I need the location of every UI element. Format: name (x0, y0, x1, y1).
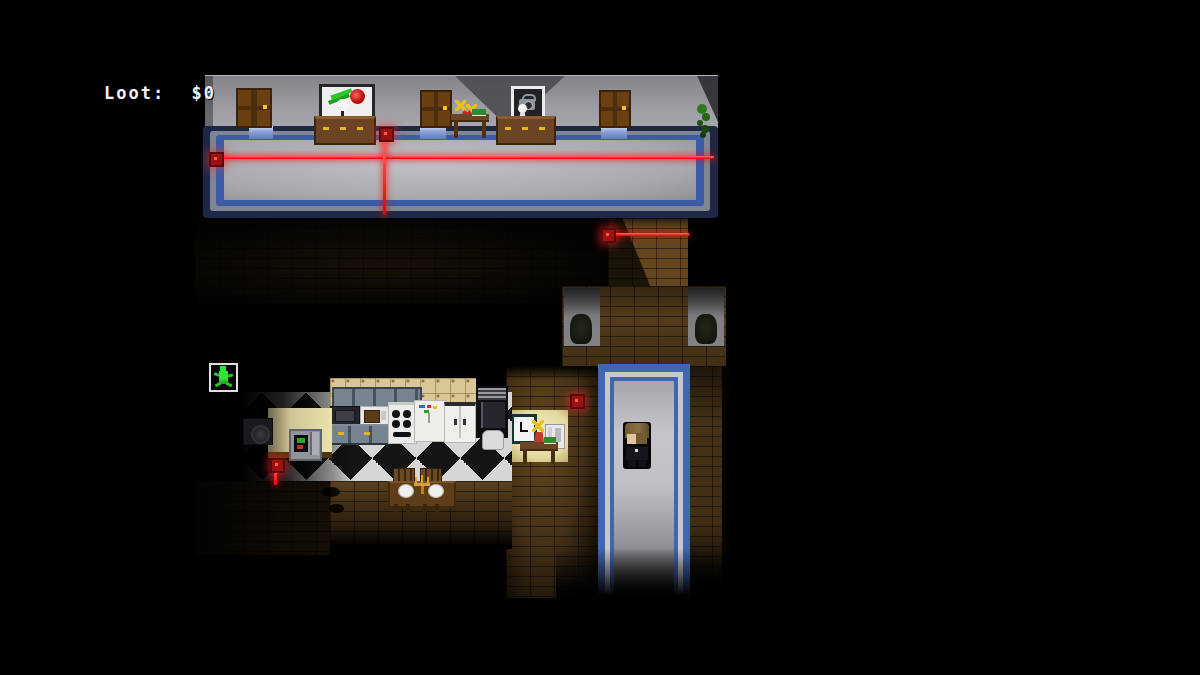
fridge-handle (428, 413, 430, 423)
book (472, 109, 486, 116)
drawer-handle (539, 127, 545, 130)
safe[interactable] (289, 429, 322, 461)
guard-hair-side (636, 433, 647, 444)
door[interactable] (599, 90, 631, 128)
washing-machine[interactable] (243, 418, 273, 445)
guard-shirt (635, 449, 638, 452)
shadow-overlay (608, 218, 688, 228)
hallway (598, 364, 690, 600)
pantry-handle (454, 419, 457, 425)
microwave-door (364, 410, 380, 423)
fridge[interactable] (414, 400, 446, 442)
table-leg (551, 449, 555, 464)
potted-plant (697, 104, 707, 114)
fridge-magnet (427, 405, 431, 408)
door-knob (443, 106, 447, 110)
guard-leg (628, 460, 636, 467)
sink-counter[interactable] (330, 406, 360, 426)
guard-leg (638, 460, 646, 467)
stove-burner (403, 420, 411, 428)
flowers-icon (455, 100, 466, 111)
stove-burner (403, 410, 411, 418)
loot-counter: Loot: $0 (104, 83, 216, 103)
laser-beam-horizontal (221, 156, 714, 159)
drawer-handle (340, 127, 346, 130)
fridge-magnet (433, 406, 437, 409)
drawer-handle (505, 127, 511, 130)
shadow-overlay (506, 366, 600, 598)
plate (428, 484, 444, 498)
coffee-machine (481, 402, 505, 428)
alcove-band (562, 286, 726, 366)
floor-stain (322, 487, 340, 497)
laser-device-light (275, 463, 278, 466)
laser-device-light (214, 157, 217, 160)
dark-brick-wall (195, 218, 610, 304)
floor-stain (329, 504, 344, 513)
floor-carpet (224, 140, 696, 200)
waste-bin[interactable] (482, 430, 504, 450)
table-leg (482, 120, 486, 138)
cabinet-handle (338, 432, 344, 435)
washer-door (251, 425, 270, 444)
door-knob (622, 106, 626, 110)
safe-door-open (310, 432, 319, 455)
loot-label: Loot: (104, 83, 165, 103)
game-viewport: Loot: $0 (0, 0, 1200, 675)
laser-device-icon[interactable] (270, 458, 285, 473)
brick-wall-right (688, 366, 722, 592)
pantry-cabinet[interactable] (444, 402, 476, 443)
laser-device-icon[interactable] (209, 152, 224, 167)
laser-device-light (384, 132, 387, 135)
shadow-overlay (196, 481, 330, 555)
dresser[interactable] (496, 116, 556, 145)
table-leg (454, 120, 458, 138)
flower-vase[interactable] (534, 432, 544, 442)
door-knob (263, 105, 267, 109)
shadow-overlay (688, 366, 722, 592)
stove-burner (392, 410, 400, 418)
base-cabinets[interactable] (330, 424, 390, 445)
laser-beam-horizontal (612, 233, 689, 236)
loot-value: $0 (191, 83, 215, 103)
microwave-buttons (381, 411, 386, 420)
laser-device-icon[interactable] (379, 127, 394, 142)
table-leg (523, 449, 527, 464)
stove-burner (392, 420, 400, 428)
drawer-handle (357, 127, 363, 130)
plate (398, 484, 414, 498)
pantry-handle (463, 419, 466, 425)
statue-icon (695, 314, 717, 344)
chair-leg (423, 504, 427, 513)
microwave[interactable] (360, 406, 390, 426)
safe-loot-item (297, 445, 303, 449)
exit-icon[interactable] (207, 361, 240, 394)
candle (421, 475, 423, 483)
drawer-handle (522, 127, 528, 130)
chair-leg (435, 504, 439, 513)
flower-table-group[interactable] (451, 100, 491, 140)
clock-hands (520, 422, 528, 432)
candelabra-stem (421, 486, 424, 494)
laser-device-icon[interactable] (601, 228, 616, 243)
pantry-door-gap (459, 406, 461, 438)
brick-wall-center (506, 366, 600, 598)
safe-cash (297, 438, 305, 443)
fridge-magnet (419, 405, 425, 408)
cabinet-handle (364, 432, 370, 435)
window-blinds (478, 388, 506, 400)
laser-device-light (575, 399, 578, 402)
door[interactable] (236, 88, 272, 128)
dresser[interactable] (314, 116, 376, 145)
phone-alcove-wall (508, 410, 568, 462)
statue-icon (570, 314, 592, 344)
book[interactable] (544, 437, 556, 444)
vase-top (518, 104, 527, 113)
oven-handle (393, 432, 411, 437)
chair-leg (394, 504, 398, 513)
dark-brick-floor-left (196, 481, 330, 555)
drawer-handle (323, 127, 329, 130)
door[interactable] (420, 90, 452, 128)
laser-device-light (606, 233, 609, 236)
stove[interactable] (388, 402, 417, 444)
guard-character[interactable] (623, 422, 651, 469)
candelabra-icon[interactable] (414, 475, 430, 495)
statue-niche-right (688, 288, 724, 346)
sink-basin (335, 410, 355, 422)
shadow-overlay (506, 366, 600, 380)
laser-device-icon[interactable] (570, 394, 585, 409)
ceiling-shadow-wedge (686, 76, 718, 122)
rose-bloom (350, 89, 365, 104)
shadow-overlay (195, 218, 610, 304)
chair-leg (406, 504, 410, 513)
hallway-floor (614, 381, 674, 600)
statue-niche-left (564, 288, 600, 346)
flowers-icon (532, 420, 544, 432)
laser-beam-vertical (383, 138, 386, 215)
